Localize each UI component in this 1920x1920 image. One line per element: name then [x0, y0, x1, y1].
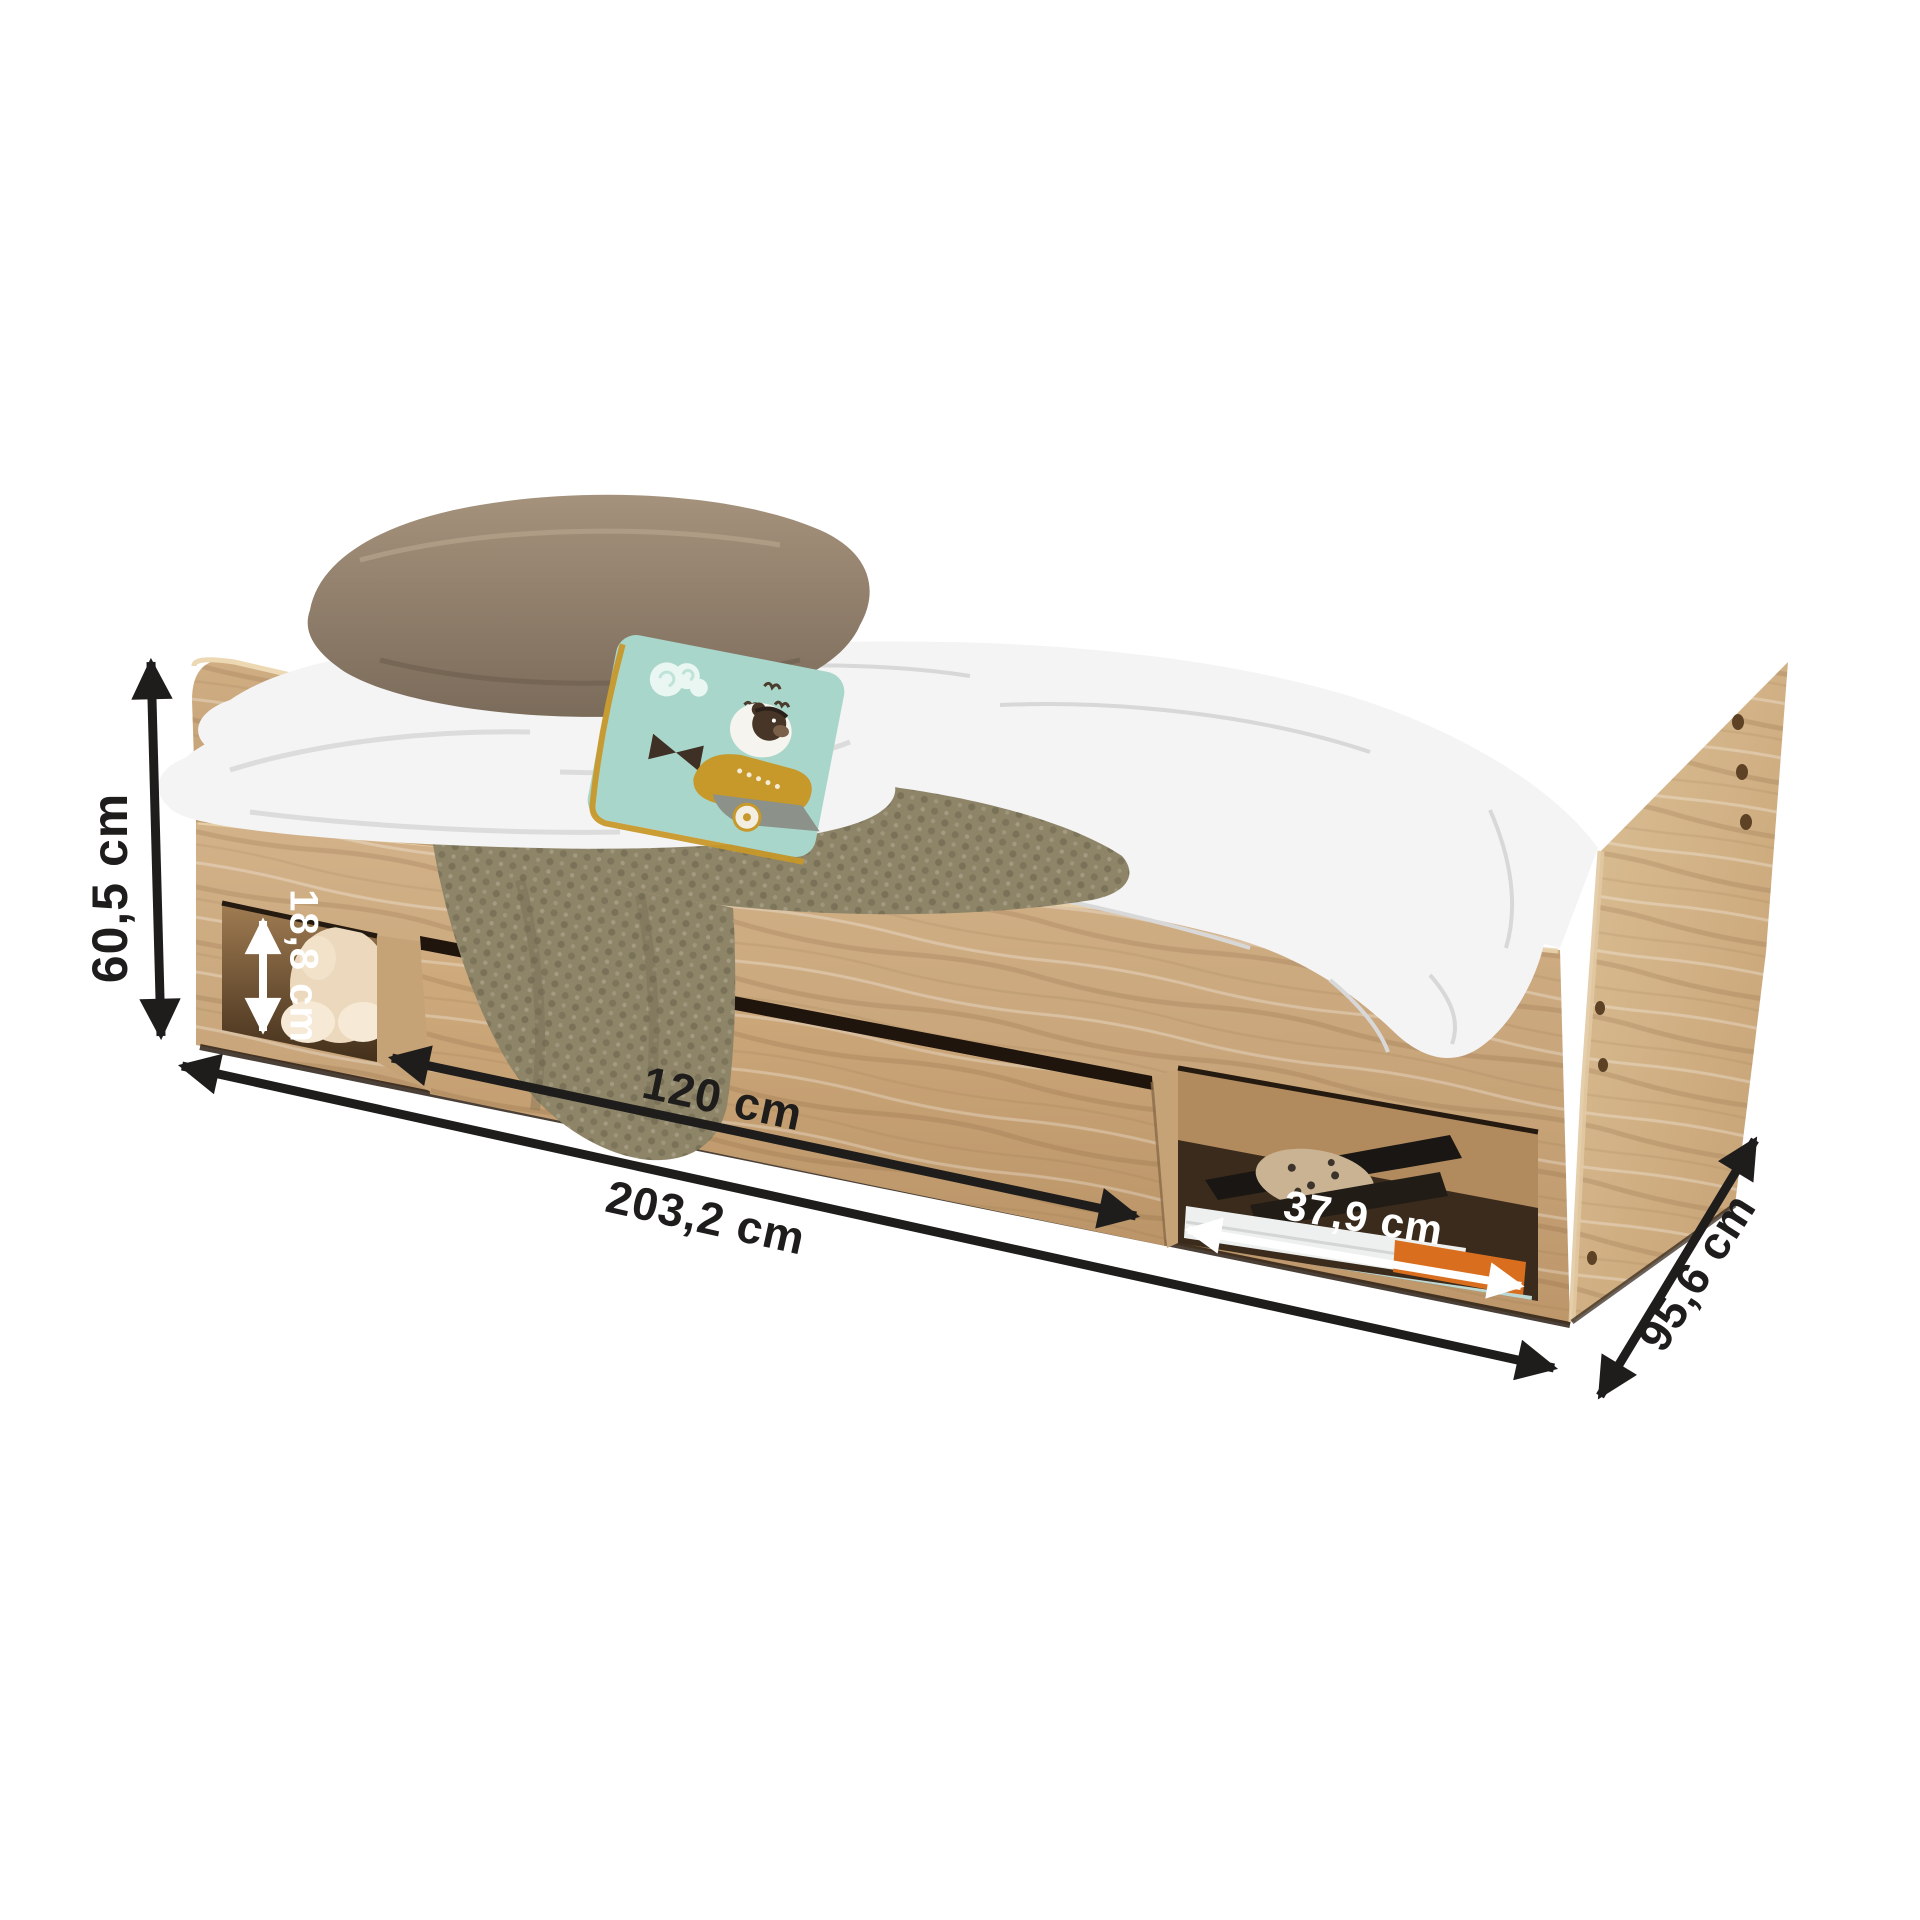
height-arrow [151, 662, 161, 1036]
niche-height-label: 18,8 cm [281, 889, 325, 1043]
bed-dimension-diagram: 60,5 cm 18,8 cm 120 cm 203,2 cm 37,9 cm … [0, 0, 1920, 1920]
bed-diagram-canvas: 60,5 cm 18,8 cm 120 cm 203,2 cm 37,9 cm … [0, 0, 1920, 1920]
height-label: 60,5 cm [82, 793, 138, 983]
dimension-total-height: 60,5 cm [82, 662, 161, 1036]
